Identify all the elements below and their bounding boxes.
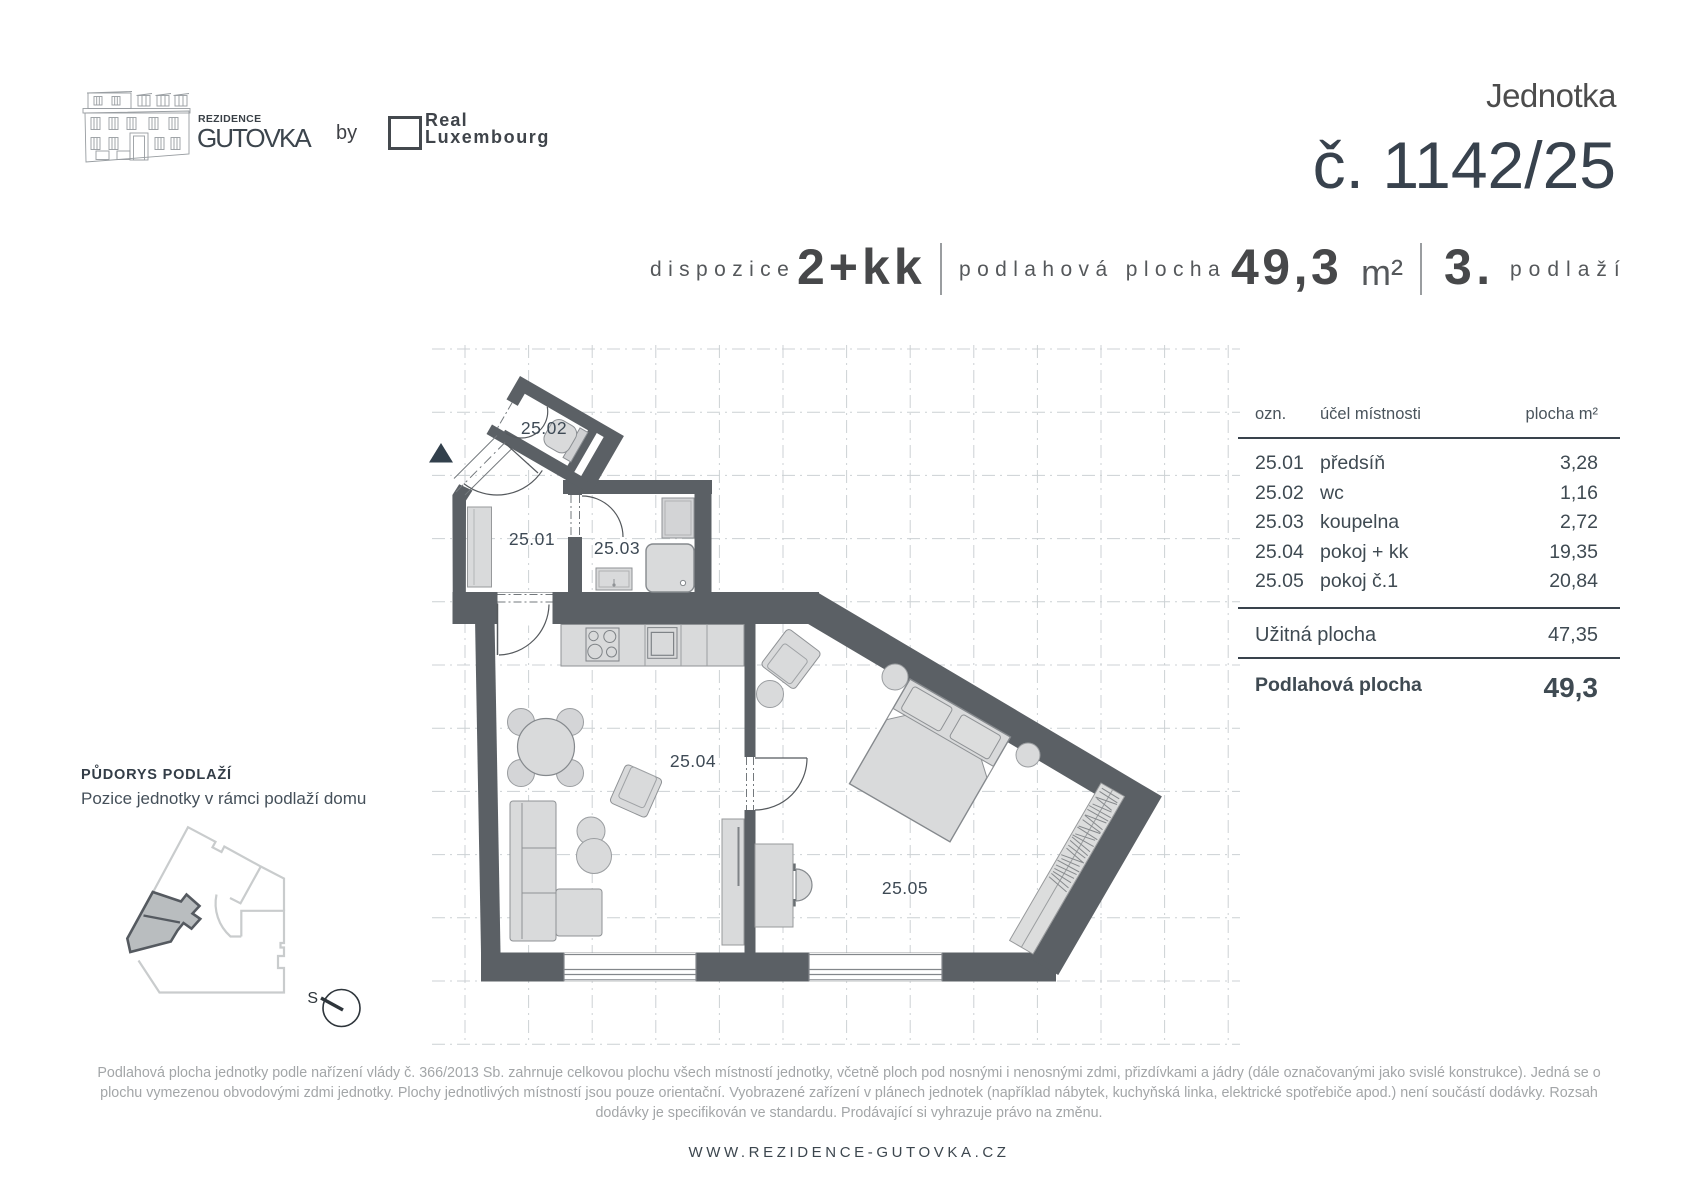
svg-text:S: S (307, 990, 318, 1007)
svg-text:25.01: 25.01 (509, 529, 555, 549)
svg-text:25.02: 25.02 (521, 418, 567, 438)
svg-text:25.03: 25.03 (594, 538, 640, 558)
svg-text:25.04: 25.04 (670, 751, 716, 771)
svg-text:25.05: 25.05 (882, 878, 928, 898)
